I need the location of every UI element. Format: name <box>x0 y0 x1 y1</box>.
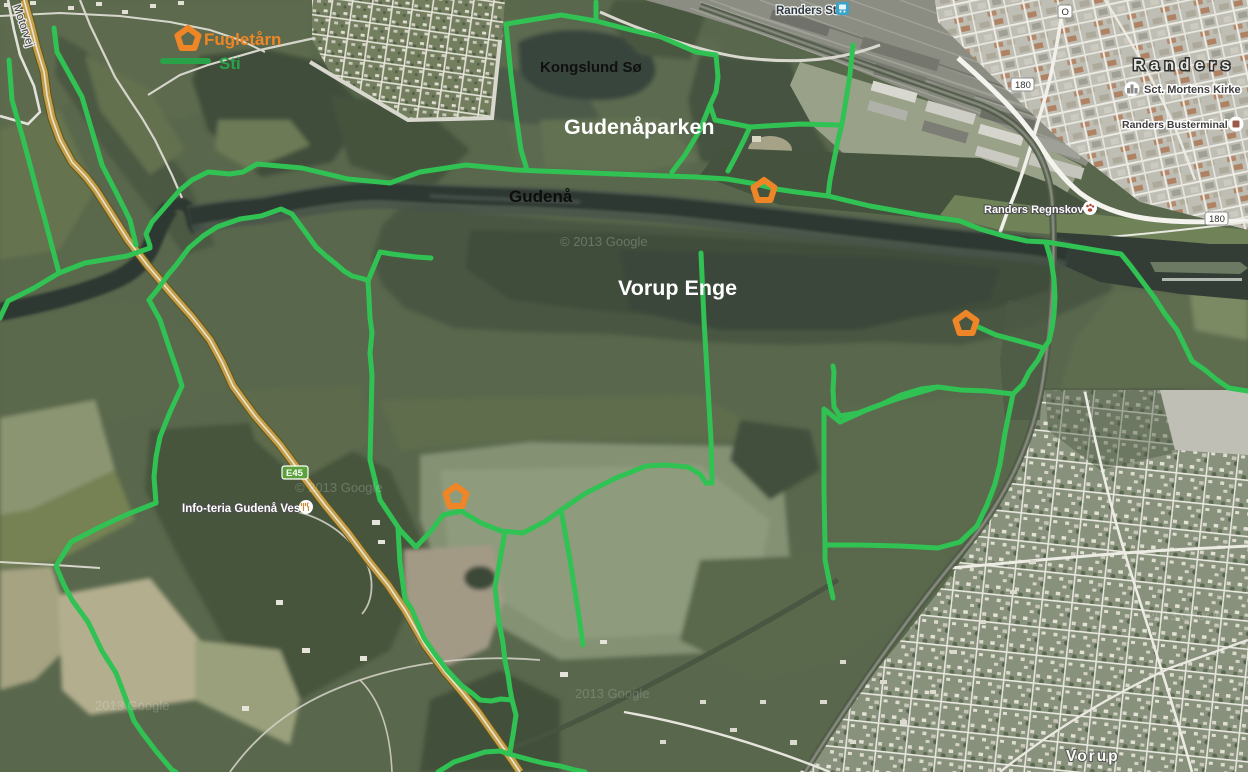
svg-text:2013 Google: 2013 Google <box>575 686 649 701</box>
svg-text:180: 180 <box>1209 214 1225 225</box>
svg-text:Sct. Mortens Kirke: Sct. Mortens Kirke <box>1144 84 1241 96</box>
svg-text:2013 Google: 2013 Google <box>1148 608 1222 623</box>
svg-text:Randers: Randers <box>1133 57 1236 74</box>
svg-text:Kongslund Sø: Kongslund Sø <box>540 59 642 76</box>
svg-text:Vorup Enge: Vorup Enge <box>618 276 737 300</box>
svg-text:2013 Google: 2013 Google <box>95 698 169 713</box>
svg-text:Randers Regnskov: Randers Regnskov <box>984 204 1085 216</box>
svg-text:© 2013 Google: © 2013 Google <box>560 234 648 249</box>
svg-text:© 2013 Google: © 2013 Google <box>295 480 383 495</box>
svg-text:Randers St.: Randers St. <box>776 5 840 17</box>
svg-text:180: 180 <box>1015 80 1031 91</box>
svg-text:Randers Busterminal: Randers Busterminal <box>1122 119 1228 131</box>
svg-text:O: O <box>1062 7 1069 18</box>
svg-text:Gudenå: Gudenå <box>509 187 573 206</box>
svg-text:Vorup: Vorup <box>1066 748 1120 765</box>
svg-text:E45: E45 <box>286 468 304 479</box>
svg-text:Fugletårn: Fugletårn <box>204 30 281 49</box>
svg-text:Sti: Sti <box>219 54 241 73</box>
svg-text:Info-teria Gudenå Vest: Info-teria Gudenå Vest <box>182 503 304 515</box>
svg-text:Gudenåparken: Gudenåparken <box>564 115 715 139</box>
